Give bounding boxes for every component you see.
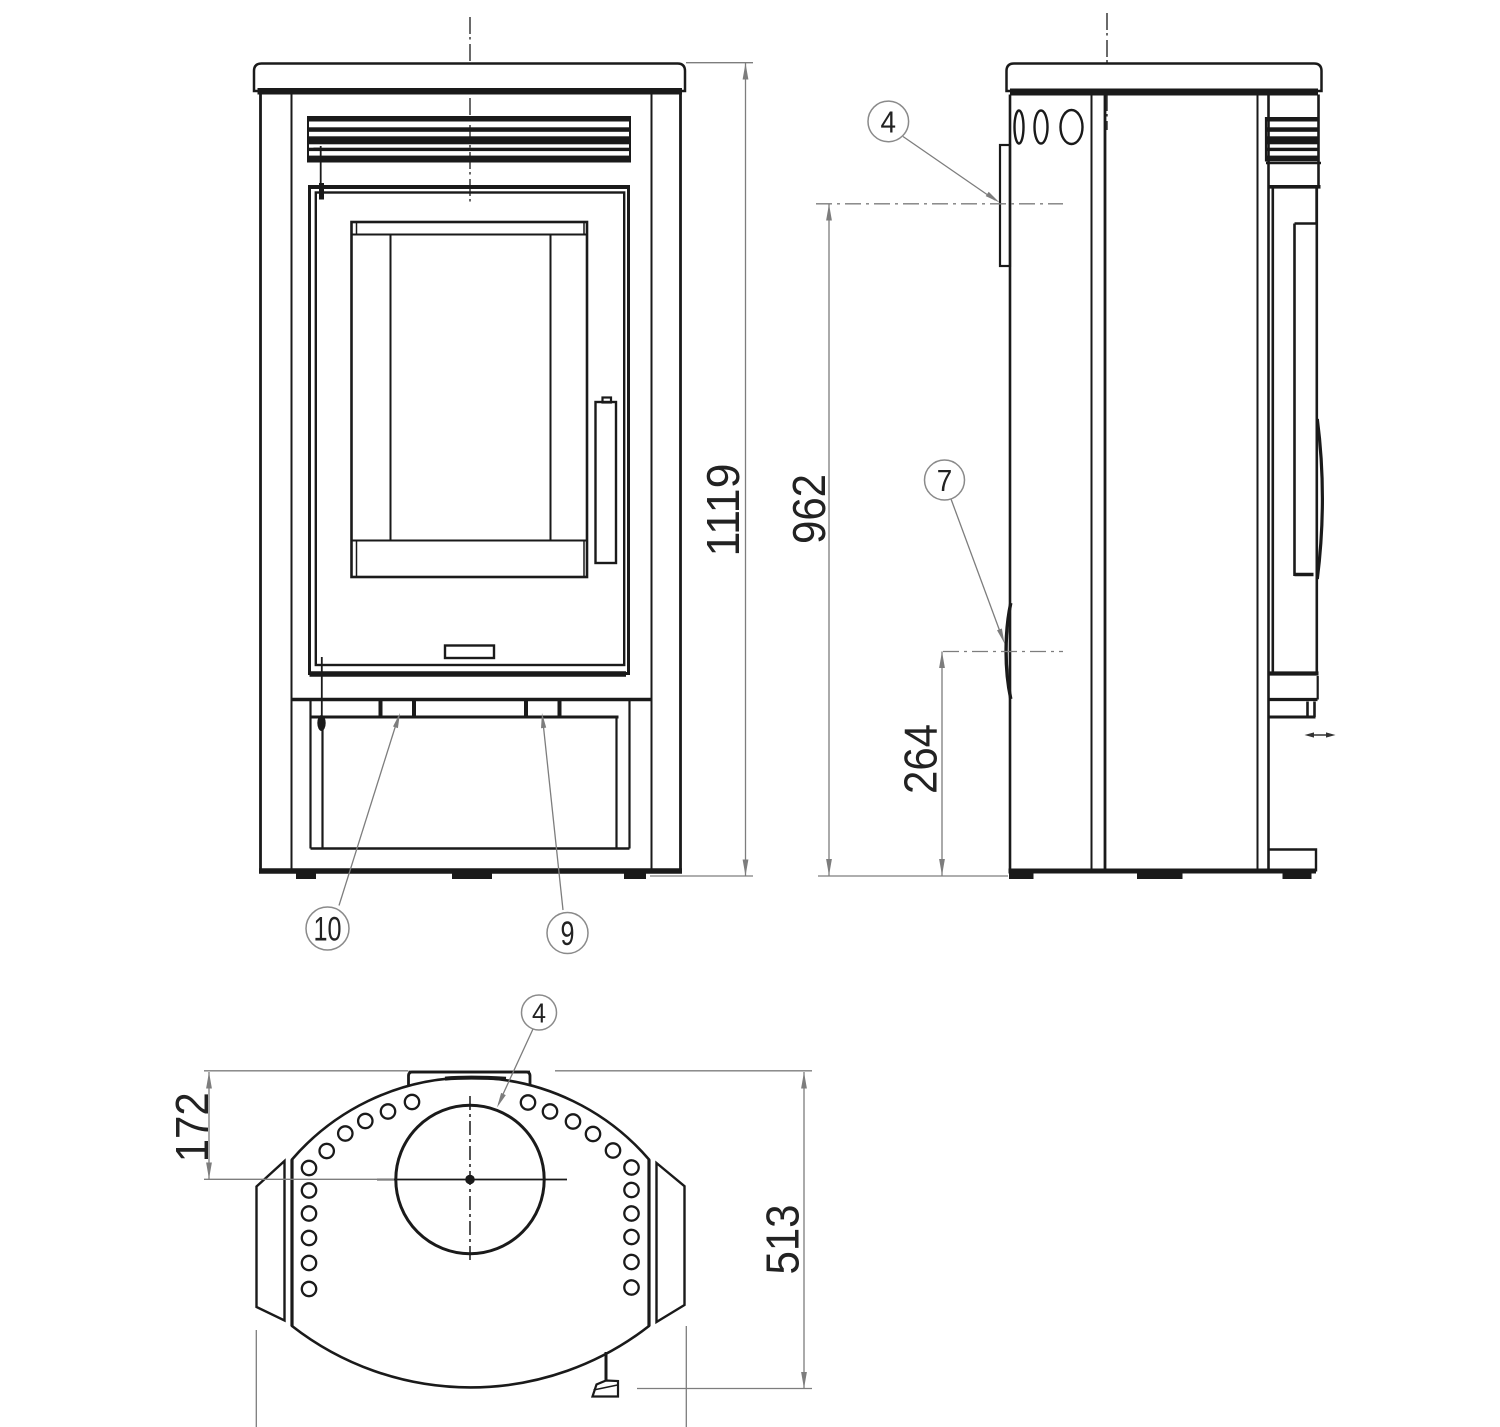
svg-text:10: 10 — [314, 911, 342, 949]
svg-text:7: 7 — [937, 463, 953, 498]
svg-text:513: 513 — [757, 1205, 809, 1275]
svg-text:9: 9 — [561, 915, 575, 953]
svg-text:4: 4 — [532, 998, 546, 1029]
svg-text:4: 4 — [881, 105, 897, 140]
svg-text:1119: 1119 — [697, 464, 749, 557]
svg-text:172: 172 — [166, 1092, 218, 1162]
svg-text:962: 962 — [783, 474, 835, 544]
svg-text:264: 264 — [895, 724, 947, 794]
